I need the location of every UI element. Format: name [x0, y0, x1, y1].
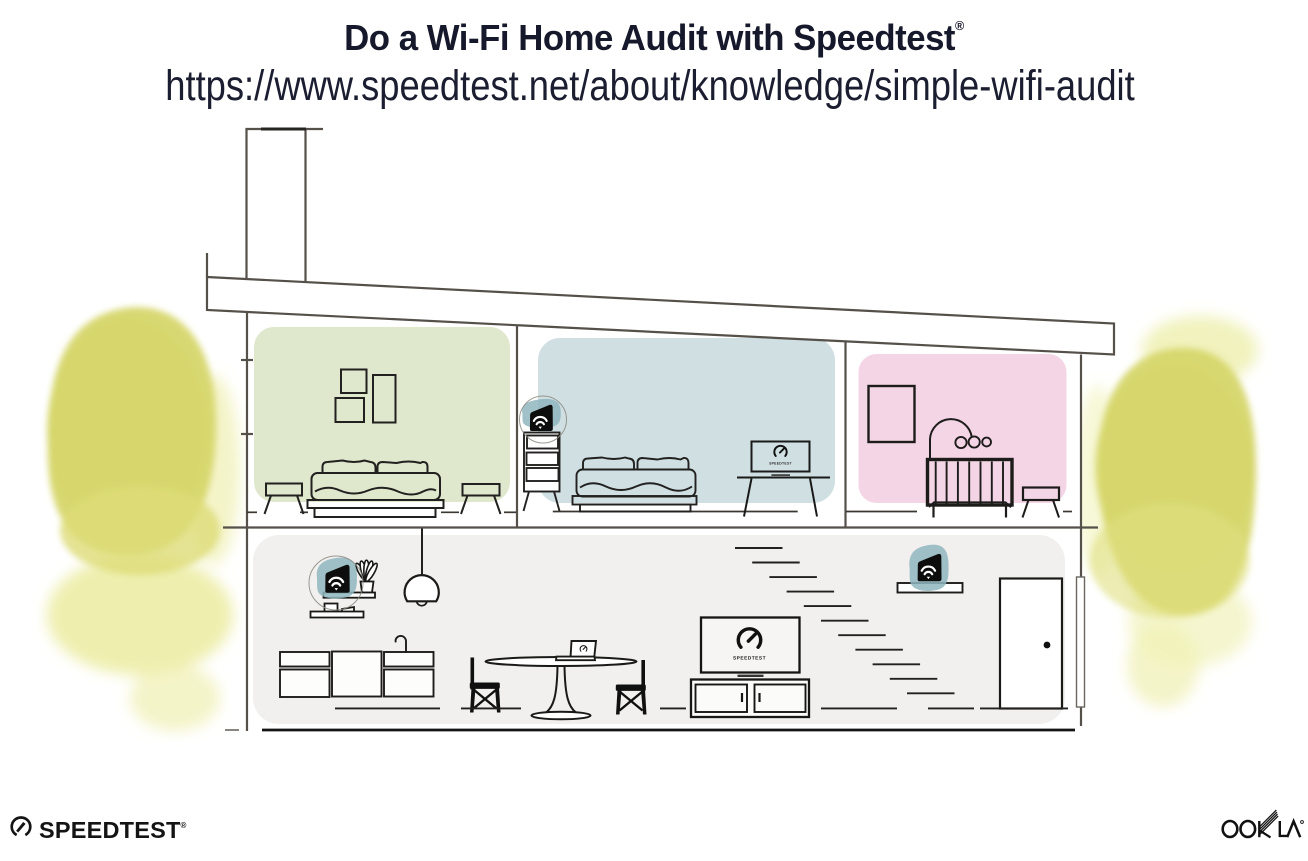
svg-text:SPEEDTEST: SPEEDTEST [733, 656, 766, 662]
svg-text:SPEEDTEST: SPEEDTEST [769, 462, 792, 466]
